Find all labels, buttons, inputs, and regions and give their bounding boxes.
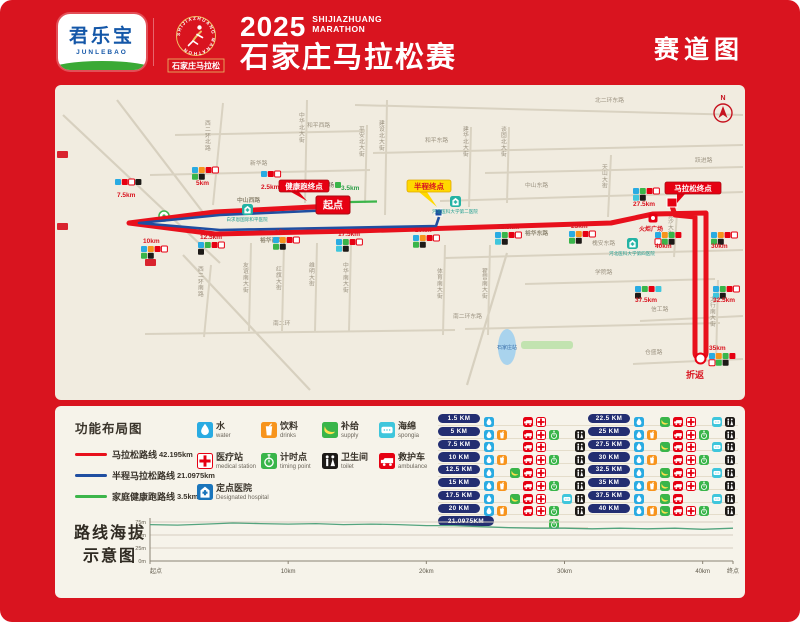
toilet-icon: [148, 253, 154, 259]
route-legend-item: 马拉松路线42.195km: [75, 444, 200, 465]
supply-icon: [343, 239, 349, 245]
drinks-icon: [716, 353, 722, 359]
event-title-en: SHIJIAZHUANG MARATHON: [312, 15, 382, 35]
km-grid-row: 10 KM: [438, 451, 588, 464]
ambulance-icon: [647, 188, 653, 194]
facility-label-en: supply: [341, 433, 359, 439]
ambulance-icon: [729, 353, 735, 359]
timing-point-icon: [569, 238, 575, 244]
callout-label: 马拉松终点: [674, 183, 712, 193]
km-marker: 35km: [709, 345, 735, 366]
park-area: [521, 341, 573, 349]
street-label: 建华北大街: [463, 125, 469, 158]
route-distance: 42.195km: [159, 450, 193, 459]
km-marker-label: 12.5km: [200, 234, 222, 241]
km-grid-row: 12.5 KM: [438, 464, 588, 477]
street-line: [443, 245, 445, 335]
street-label: 南二环东路: [453, 312, 482, 320]
medical-station-icon: [356, 239, 362, 245]
sponge-icon: [379, 422, 395, 438]
route-swatch: [75, 474, 107, 477]
km-marker: 10km: [141, 238, 167, 259]
km-marker-label: 25km: [571, 223, 588, 230]
km-marker-label: 32.5km: [713, 297, 735, 304]
medical-station-icon: [197, 453, 213, 469]
toilet-icon: [280, 244, 286, 250]
street-line: [349, 243, 351, 331]
water-icon: [115, 179, 121, 185]
water-icon: [273, 237, 279, 243]
facility-label-cn: 补给: [341, 422, 359, 431]
facility-label-cn: 水: [216, 422, 231, 431]
facility-labels: 医疗站medical station: [216, 453, 256, 470]
elev-ytick-label: 0m: [138, 559, 146, 565]
ambulance-icon: [583, 231, 589, 237]
water-icon: [713, 286, 719, 292]
water-icon: [711, 232, 717, 238]
elev-xtick-label: 起点: [150, 567, 162, 575]
km-marker-label: 22.5km: [497, 224, 519, 231]
facility-label-en: Designated hospital: [216, 495, 269, 501]
station-label: 石家庄站: [497, 344, 517, 351]
turnaround-marker: [696, 354, 706, 364]
water-icon: [336, 239, 342, 245]
water-icon: [495, 232, 501, 238]
water-icon: [261, 171, 267, 177]
drinks-icon: [261, 422, 277, 438]
street-label: 中华南大街: [343, 261, 349, 294]
km-marker-label: 7.5km: [117, 192, 136, 199]
facility-label-cn: 计时点: [280, 453, 311, 462]
street-label: 天山大街: [602, 164, 608, 190]
facility-label-cn: 救护车: [398, 453, 427, 462]
km-marker-label: 37.5km: [635, 297, 657, 304]
ambulance-icon: [727, 286, 733, 292]
street-label: 红旗大街: [276, 265, 282, 292]
facility-labels: 海绵spongia: [398, 422, 419, 439]
facility-labels: 计时点timing point: [280, 453, 311, 470]
street-line: [507, 127, 509, 203]
timing-point-icon: [716, 360, 722, 366]
street-label: 中华北大街: [299, 111, 305, 144]
facility-labels: 补给supply: [341, 422, 359, 439]
street-label: 西二环南路: [198, 266, 204, 298]
toilet-icon: [198, 249, 204, 255]
marathon-emblem: SHIJIAZHUANG MARATHON 石家庄马拉松: [160, 10, 232, 76]
street-line: [465, 323, 720, 329]
elevation-chart: 0m25m50m75m起点10km20km30km40km终点: [128, 510, 742, 594]
supply-icon: [205, 242, 211, 248]
supply-icon: [669, 232, 675, 238]
km-marker: 2.5km: [261, 171, 281, 191]
km-marker: 22.5km: [495, 224, 521, 245]
road-sign-chip: [57, 151, 68, 158]
street-label: 中山西路: [237, 196, 260, 204]
km-grid-row: 5 KM: [438, 426, 588, 439]
route-legend-item: 半程马拉松路线21.0975km: [75, 465, 200, 486]
elev-ytick-label: 50m: [135, 533, 146, 539]
facility-label-en: toilet: [341, 464, 368, 470]
header-divider: [153, 18, 154, 66]
medical-station-icon: [212, 167, 218, 173]
street-label: 仓盛路: [645, 348, 663, 356]
water-icon: [413, 235, 419, 241]
street-label: 友谊南大街: [243, 261, 249, 294]
elev-ytick-label: 25m: [135, 546, 146, 552]
km-marker: 30km: [711, 232, 737, 250]
street-line: [150, 170, 370, 175]
street-line: [365, 125, 367, 203]
km-grid-row: 1.5 KM: [438, 413, 588, 426]
km-marker: 32.5km: [713, 286, 739, 304]
km-marker-label: 40km: [655, 243, 672, 250]
street-label: 信工路: [651, 305, 669, 313]
street-label: 谈固北大街: [501, 125, 507, 158]
route-legend: 马拉松路线42.195km半程马拉松路线21.0975km家庭健康跑路线3.5k…: [75, 444, 200, 507]
facility-label-cn: 海绵: [398, 422, 419, 431]
finish-callout: 半程终点: [407, 180, 451, 207]
ambulance-icon: [509, 232, 515, 238]
marathon-emblem-graphic: SHIJIAZHUANG MARATHON 石家庄马拉松: [160, 10, 232, 76]
sponsor-logo-en: JUNLEBAO: [58, 49, 146, 56]
ambulance-icon: [206, 167, 212, 173]
km-marker-label: 2.5km: [261, 184, 280, 191]
street-line: [315, 243, 317, 331]
facility-legend-item: 医疗站medical station: [197, 453, 261, 484]
street-label: 槐安东路: [592, 239, 615, 247]
legend-panel: 功能布局图 马拉松路线42.195km半程马拉松路线21.0975km家庭健康跑…: [55, 406, 745, 598]
north-arrow-pointer: [719, 106, 728, 118]
facility-legend-item: 水water: [197, 422, 261, 453]
km-pill: 1.5 KM: [438, 414, 480, 423]
street-label: 新华路: [250, 159, 268, 167]
toilet-icon: [322, 453, 338, 469]
street-label: 裕华西路: [259, 236, 283, 244]
km-marker: 17.5km: [336, 231, 362, 252]
supply-icon: [642, 286, 648, 292]
railway-line: [63, 115, 220, 263]
street-label: 平安北大街: [359, 126, 365, 158]
event-title-cn: 石家庄马拉松赛: [240, 44, 457, 73]
street-line: [175, 131, 365, 135]
ambulance-icon: [268, 171, 274, 177]
plaza-label: 火炬广场: [639, 225, 663, 233]
sponsor-logo: 君乐宝 JUNLEBAO: [58, 14, 146, 70]
elev-xtick-label: 10km: [281, 569, 296, 575]
km-grid-row: 22.5 KM: [588, 413, 738, 426]
north-arrow-icon: N: [714, 95, 732, 122]
medical-station-icon: [733, 286, 739, 292]
street-line: [488, 245, 490, 335]
callout-label: 半程终点: [414, 181, 444, 191]
km-pill: 25 KM: [588, 427, 630, 436]
course-map: 北二环东路和平西路和平东路新华路跃进路中山东路槐安东路学院路南二环南二环东路信工…: [55, 85, 745, 400]
km-pill: 15 KM: [438, 478, 480, 487]
street-label: 和平西路: [307, 121, 330, 129]
course-map-panel: 北二环东路和平西路和平东路新华路跃进路中山东路槐安东路学院路南二环南二环东路信工…: [55, 85, 745, 400]
water-icon: [192, 167, 198, 173]
street-label: 体育南大街: [437, 267, 443, 300]
ambulance-icon: [675, 232, 681, 238]
km-marker-label: 10km: [143, 238, 160, 245]
drinks-icon: [718, 232, 724, 238]
facility-legend-item: 计时点timing point: [261, 453, 322, 484]
facility-labels: 饮料drinks: [280, 422, 298, 439]
facility-label-en: timing point: [280, 464, 311, 470]
street-label: 建设北大街: [379, 119, 385, 152]
timing-point-icon: [413, 242, 419, 248]
route-distance: 3.5km: [177, 492, 198, 501]
legend-title: 功能布局图: [75, 418, 143, 437]
street-line: [145, 330, 455, 334]
supply-icon: [322, 422, 338, 438]
km-marker-label: 35km: [709, 345, 726, 352]
route-legend-label: 半程马拉松路线: [112, 469, 175, 482]
route-swatch: [75, 495, 107, 498]
elev-xtick-label: 终点: [727, 567, 739, 575]
medical-station-icon: [218, 242, 224, 248]
toilet-icon: [723, 360, 729, 366]
medical-station-icon: [653, 188, 659, 194]
km-pill: 27.5 KM: [588, 440, 630, 449]
toilet-icon: [576, 238, 582, 244]
medical-station-icon: [589, 231, 595, 237]
km-marker: 3.5km: [335, 182, 360, 192]
water-icon: [198, 242, 204, 248]
street-label: 裕华东路: [524, 229, 548, 237]
callout-pointer: [419, 192, 437, 207]
marathon-finish-marker: [667, 198, 677, 207]
km-pill: 22.5 KM: [588, 414, 630, 423]
drinks-icon: [280, 237, 286, 243]
water-icon: [635, 286, 641, 292]
medical-station-icon: [161, 246, 167, 252]
hospital-label: 白求恩国际和平医院: [226, 216, 268, 223]
facility-legend-item: 海绵spongia: [379, 422, 439, 453]
km-pill: 10 KM: [438, 452, 480, 461]
km-marker: 7.5km: [115, 179, 141, 199]
km-marker: 37.5km: [635, 286, 661, 304]
street-label: 和平东路: [425, 136, 448, 144]
toilet-icon: [420, 242, 426, 248]
runner-icon: [189, 25, 203, 45]
street-line: [469, 127, 471, 207]
km-pill: 12.5 KM: [438, 465, 480, 474]
water-icon: [197, 422, 213, 438]
km-grid-row: 17.5 KM: [438, 490, 588, 503]
sponsor-logo-cn: 君乐宝: [58, 21, 146, 48]
ambulance-icon: [379, 453, 395, 469]
water-icon: [633, 188, 639, 194]
elev-xtick-label: 40km: [695, 569, 710, 575]
km-grid-row: 27.5 KM: [588, 439, 738, 452]
ambulance-icon: [427, 235, 433, 241]
street-line: [355, 105, 743, 115]
water-icon: [709, 353, 715, 359]
emblem-cn-label: 石家庄马拉松: [171, 61, 220, 71]
ambulance-icon: [212, 242, 218, 248]
elev-ytick-label: 75m: [135, 520, 146, 526]
turnaround-label: 折返: [686, 369, 704, 380]
toilet-icon: [640, 195, 646, 201]
street-line: [373, 145, 743, 153]
km-grid-right: 22.5 KM25 KM27.5 KM30 KM32.5 KM35 KM37.5…: [588, 413, 738, 515]
facility-label-cn: 定点医院: [216, 484, 269, 493]
km-pill: 37.5 KM: [588, 491, 630, 500]
supply-icon: [723, 353, 729, 359]
km-pill: 7.5 KM: [438, 440, 480, 449]
road-sign-chip: [145, 259, 156, 266]
event-title-en-line1: SHIJIAZHUANG: [312, 14, 382, 24]
route-legend-label: 马拉松路线: [112, 448, 157, 461]
medical-station-icon: [731, 232, 737, 238]
north-label: N: [720, 95, 725, 102]
water-icon: [569, 231, 575, 237]
ambulance-icon: [725, 232, 731, 238]
facility-label-en: ambulance: [398, 464, 427, 470]
km-marker-label: 17.5km: [338, 231, 360, 238]
ambulance-icon: [649, 286, 655, 292]
km-grid-row: 30 KM: [588, 451, 738, 464]
timing-point-icon: [273, 244, 279, 250]
street-line: [249, 243, 251, 331]
ambulance-icon: [155, 246, 161, 252]
medical-station-icon: [129, 179, 135, 185]
sponge-icon: [495, 239, 501, 245]
street-line: [525, 279, 715, 284]
km-marker-label: 30km: [711, 243, 728, 250]
street-label: 翟营南大街: [482, 268, 488, 300]
facility-legend-item: 补给supply: [322, 422, 379, 453]
page-label: 赛道图: [654, 30, 744, 66]
supply-icon: [640, 188, 646, 194]
elevation-line: [150, 523, 733, 529]
timing-point-icon: [141, 253, 147, 259]
facility-labels: 水water: [216, 422, 231, 439]
medical-station-icon: [433, 235, 439, 241]
callout-label: 健康跑终点: [285, 181, 323, 191]
supply-icon: [502, 232, 508, 238]
event-title: 2025 SHIJIAZHUANG MARATHON 石家庄马拉松赛: [240, 13, 457, 73]
street-line: [385, 100, 387, 215]
km-grid-row: 25 KM: [588, 426, 738, 439]
callout-pointer: [677, 194, 685, 203]
toilet-icon: [135, 179, 141, 185]
hospital-landmark: 河北医科大学第二医院: [432, 196, 478, 215]
facility-label-en: medical station: [216, 464, 256, 470]
km-marker-label: 3.5km: [341, 185, 360, 192]
street-label: 西二环北路: [205, 120, 211, 152]
toilet-icon: [502, 239, 508, 245]
km-grid-row: 15 KM: [438, 477, 588, 490]
street-label: 维明大街: [309, 261, 315, 288]
km-pill: 35 KM: [588, 478, 630, 487]
medical-station-icon: [293, 237, 299, 243]
street-line: [640, 316, 743, 321]
street-line: [282, 243, 284, 331]
street-line: [485, 167, 743, 173]
start-marker-label: 起点: [322, 199, 343, 212]
drinks-icon: [199, 167, 205, 173]
sponsor-logo-swoosh: [58, 61, 146, 70]
elev-xtick-label: 20km: [419, 569, 434, 575]
km-marker-label: 20km: [415, 227, 432, 234]
event-title-en-line2: MARATHON: [312, 24, 365, 34]
drinks-icon: [148, 246, 154, 252]
route-legend-item: 家庭健康跑路线3.5km: [75, 486, 200, 507]
drinks-icon: [576, 231, 582, 237]
street-line: [204, 265, 211, 337]
facility-label-en: water: [216, 433, 231, 439]
sponge-icon: [633, 195, 639, 201]
water-icon: [141, 246, 147, 252]
facility-labels: 定点医院Designated hospital: [216, 484, 269, 501]
elev-xtick-label: 30km: [557, 569, 572, 575]
street-line: [213, 103, 223, 205]
km-marker: 12.5km: [198, 234, 224, 255]
km-pill: 5 KM: [438, 427, 480, 436]
facility-labels: 卫生间toilet: [341, 453, 368, 470]
facility-legend: 水water饮料drinks补给supply海绵spongia医疗站medica…: [197, 422, 439, 515]
km-marker: 27.5km: [633, 188, 659, 208]
supply-icon: [720, 286, 726, 292]
hospital-icon: [197, 484, 213, 500]
km-grid-row: 32.5 KM: [588, 464, 738, 477]
street-label: 北二环东路: [595, 96, 624, 104]
km-marker-label: 15km: [275, 229, 292, 236]
km-marker-label: 5km: [196, 180, 209, 187]
route-swatch: [75, 453, 107, 456]
ambulance-icon: [122, 179, 128, 185]
hospital-label: 河北医科大学第四医院: [609, 250, 655, 257]
medical-station-icon: [709, 360, 715, 366]
street-label: 跃进路: [695, 156, 713, 164]
half-marathon-route: [139, 210, 439, 230]
street-label: 中山东路: [525, 181, 548, 189]
facility-label-cn: 卫生间: [341, 453, 368, 462]
road-sign-chip: [57, 223, 68, 230]
event-year: 2025: [240, 13, 306, 41]
km-grid-row: 7.5 KM: [438, 439, 588, 452]
ambulance-icon: [350, 239, 356, 245]
sponge-icon: [655, 286, 661, 292]
drinks-icon: [420, 235, 426, 241]
km-pill: 32.5 KM: [588, 465, 630, 474]
sponge-icon: [336, 246, 342, 252]
street-label: 学院路: [595, 268, 613, 276]
timing-point-icon: [192, 174, 198, 180]
toilet-icon: [343, 246, 349, 252]
hospital-landmark: 河北医科大学第四医院: [609, 238, 655, 257]
toilet-icon: [199, 174, 205, 180]
torch-flame: [651, 216, 655, 220]
km-pill: 17.5 KM: [438, 491, 480, 500]
km-grid-row: 37.5 KM: [588, 490, 738, 503]
street-line: [608, 155, 611, 217]
poster-frame: 君乐宝 JUNLEBAO SHIJIAZHUANG MARATHON 石家庄马拉…: [0, 0, 800, 622]
facility-label-cn: 医疗站: [216, 453, 256, 462]
km-grid-row: 35 KM: [588, 477, 738, 490]
km-marker-label: 27.5km: [633, 201, 655, 208]
facility-legend-item: 卫生间toilet: [322, 453, 379, 484]
route-legend-label: 家庭健康跑路线: [112, 490, 175, 503]
facility-labels: 救护车ambulance: [398, 453, 427, 470]
medical-station-icon: [275, 171, 281, 177]
facility-legend-item: 救护车ambulance: [379, 453, 439, 484]
km-pill: 30 KM: [588, 452, 630, 461]
facility-label-cn: 饮料: [280, 422, 298, 431]
hospital-label: 河北医科大学第二医院: [432, 208, 478, 215]
